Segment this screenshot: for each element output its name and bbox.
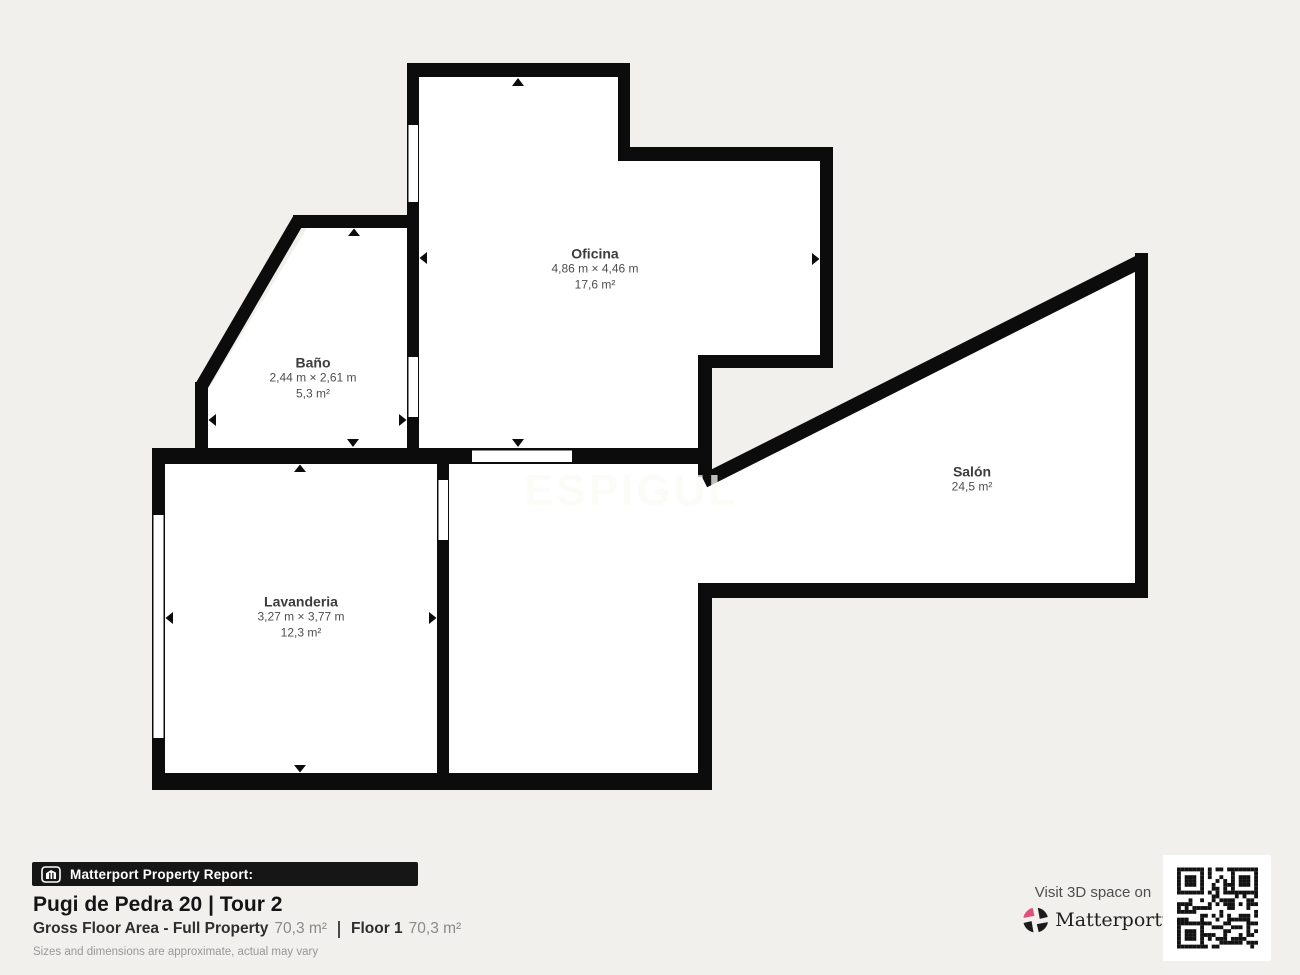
report-badge-label: Matterport Property Report:	[70, 867, 253, 882]
gross-floor-area-label: Gross Floor Area - Full Property	[33, 920, 268, 938]
wall	[1135, 253, 1148, 598]
room-area: 12,3 m²	[257, 625, 344, 641]
disclaimer-text: Sizes and dimensions are approximate, ac…	[33, 946, 318, 958]
floor-label: Floor 1	[351, 920, 403, 938]
window	[439, 480, 449, 540]
floor-area-line: Gross Floor Area - Full Property 70,3 m²…	[33, 920, 461, 938]
room-dimensions: 3,27 m × 3,77 m	[257, 610, 344, 626]
property-title: Pugi de Pedra 20 | Tour 2	[33, 893, 282, 917]
room-dimensions: 4,86 m × 4,46 m	[551, 262, 638, 278]
qr-code	[1177, 867, 1258, 949]
window	[409, 357, 419, 417]
room-name: Salón	[952, 463, 993, 479]
property-report-page: ESPIGUL Oficina 4,86 m × 4,46 m 17,6 m² …	[0, 0, 1300, 975]
visit-3d-block: Visit 3D space on Matterportʼ	[1022, 884, 1164, 934]
window	[154, 515, 164, 738]
room-fill-bano	[208, 228, 407, 448]
room-fill-salon-passage	[698, 477, 712, 583]
floor-value: 70,3 m²	[409, 920, 462, 938]
room-fills	[165, 77, 1135, 773]
wall	[698, 355, 712, 477]
wall	[820, 147, 833, 368]
room-fill-salon-annex	[449, 463, 698, 773]
room-area: 24,5 m²	[952, 479, 993, 495]
room-name: Oficina	[551, 246, 638, 262]
wall	[700, 583, 1148, 598]
visit-3d-text: Visit 3D space on	[1022, 884, 1164, 901]
matterport-wordmark: Matterport	[1055, 909, 1162, 931]
matterport-house-icon	[41, 866, 61, 883]
wall	[293, 215, 419, 228]
matterport-pinwheel-icon	[1022, 906, 1049, 934]
matterport-link[interactable]: Matterportʼ	[1022, 906, 1164, 934]
room-area: 17,6 m²	[551, 277, 638, 293]
wall	[152, 773, 712, 790]
room-label-salon: Salón 24,5 m²	[952, 463, 993, 495]
room-dimensions: 2,44 m × 2,61 m	[269, 371, 356, 387]
divider	[338, 921, 340, 938]
floor-plan	[0, 0, 1300, 975]
room-label-bano: Baño 2,44 m × 2,61 m 5,3 m²	[269, 355, 356, 402]
wall	[407, 63, 630, 77]
room-name: Baño	[269, 355, 356, 371]
window	[409, 125, 419, 202]
wall	[698, 355, 833, 368]
wall	[618, 63, 630, 160]
report-badge-bar: Matterport Property Report:	[32, 862, 418, 886]
wall	[152, 448, 712, 464]
wall	[618, 147, 833, 161]
wall	[698, 583, 712, 790]
gross-floor-area-value: 70,3 m²	[274, 920, 327, 938]
room-area: 5,3 m²	[269, 386, 356, 402]
qr-card	[1163, 855, 1271, 961]
room-label-lavanderia: Lavanderia 3,27 m × 3,77 m 12,3 m²	[257, 594, 344, 641]
door-opening	[472, 451, 572, 463]
room-name: Lavanderia	[257, 594, 344, 610]
room-label-oficina: Oficina 4,86 m × 4,46 m 17,6 m²	[551, 246, 638, 293]
